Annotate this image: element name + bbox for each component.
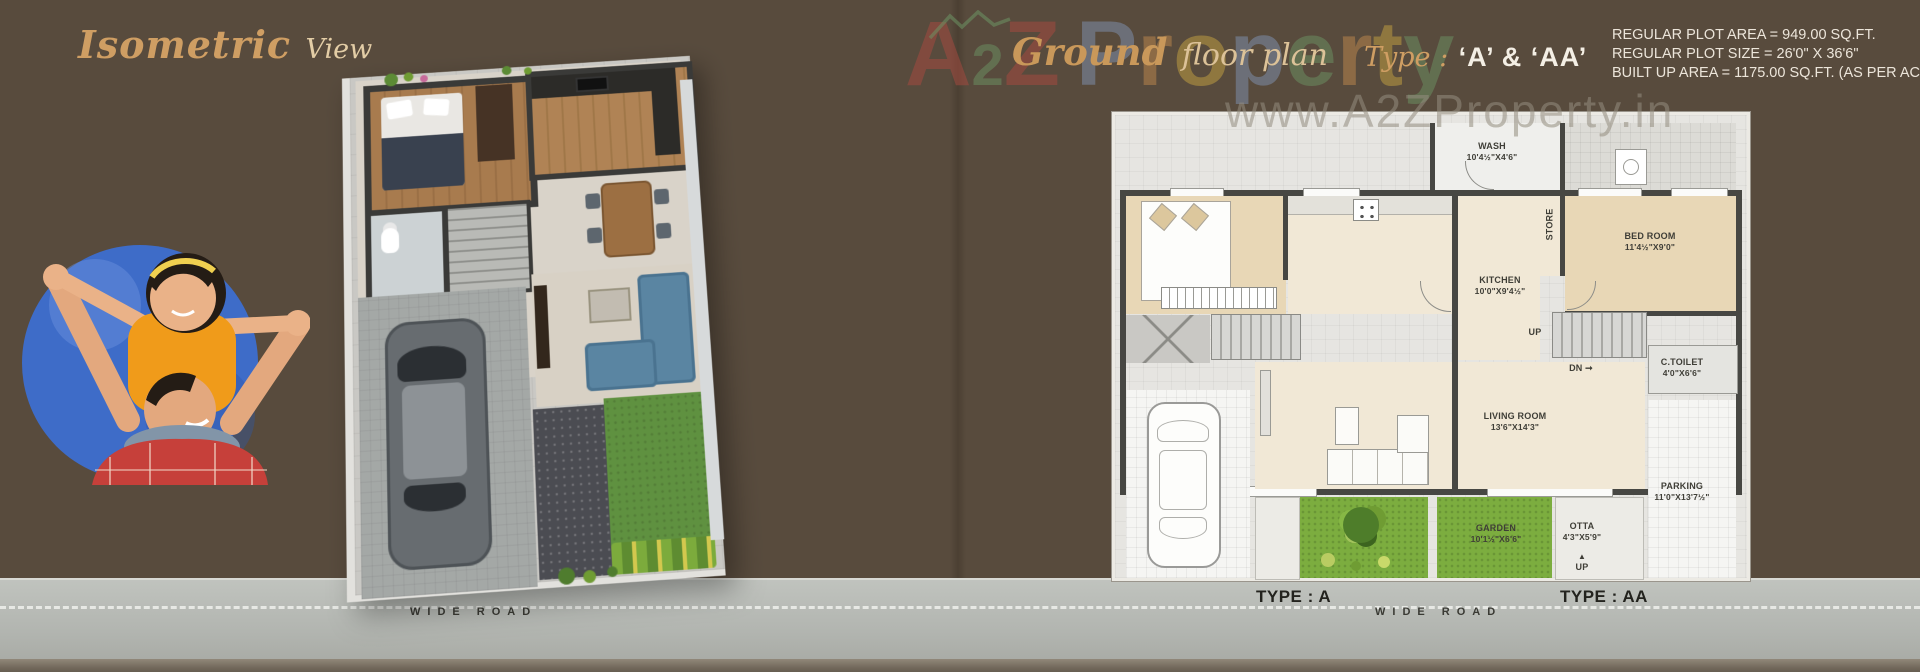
ctoilet-label: C.TOILET4'0"X6'6" <box>1661 357 1703 379</box>
stove-icon <box>575 76 608 93</box>
living-label: LIVING ROOM13'6"X14'3" <box>1484 411 1547 433</box>
toilet-icon <box>381 228 399 254</box>
mountain-icon <box>928 10 1012 40</box>
spec-plot-area: REGULAR PLOT AREA = 949.00 SQ.FT. <box>1612 26 1920 45</box>
tv-2d <box>1260 370 1271 436</box>
front-walk <box>533 405 613 581</box>
wardrobe-3d <box>475 84 515 162</box>
floor-plan-title: floor plan <box>1182 38 1328 73</box>
family-photo <box>0 185 310 485</box>
road-strip: WIDE ROAD WIDE ROAD TYPE : A TYPE : AA <box>0 578 1920 672</box>
brochure-spread: A2ZProperty www.A2ZProperty.in Isometric… <box>0 0 1920 672</box>
ground-floor-plan: WASH10'4½"X4'6" BED ROOM11'4½"X9'0" STOR… <box>1115 115 1747 578</box>
stairs-dn-label: DN ➞ <box>1569 363 1593 374</box>
ground-title: Ground <box>1012 30 1167 74</box>
kitchen-label: KITCHEN10'0"X9'4½" <box>1475 275 1526 297</box>
stove-2d-icon <box>1353 199 1379 221</box>
stairs-up-label: UP <box>1529 327 1542 338</box>
bedroom-label: BED ROOM11'4½"X9'0" <box>1624 231 1675 253</box>
table-2d <box>1335 407 1359 445</box>
lawn <box>604 391 716 549</box>
typeAA-stairs <box>1552 312 1647 358</box>
type-label: Type : <box>1364 42 1448 73</box>
dining-chair <box>654 189 670 205</box>
bed-pillow <box>423 98 449 115</box>
otta-label: OTTA4'3"X5'9" <box>1563 521 1601 543</box>
isometric-view-title: Isometric View <box>78 22 372 67</box>
bottom-texture-strip <box>0 659 1920 672</box>
wash-label: WASH10'4½"X4'6" <box>1467 141 1518 163</box>
isometric-title-main: Isometric <box>78 22 291 67</box>
tree-icon <box>1343 507 1379 543</box>
isometric-title-sub: View <box>306 34 373 65</box>
bush-icon <box>1321 553 1335 567</box>
up-arrow-icon: ▲ <box>1576 551 1589 562</box>
garden-label: GARDEN10'1½"X6'6" <box>1471 523 1522 545</box>
type-line: Type : ‘A’ & ‘AA’ <box>1364 42 1587 73</box>
store-label: STORE <box>1545 209 1556 241</box>
stairs-3d <box>444 200 534 298</box>
dn-arrow-icon: ➞ <box>1582 363 1592 373</box>
ground-floor-plan-title: Ground floor plan <box>1012 30 1328 74</box>
wide-road-label-left: WIDE ROAD <box>400 606 547 618</box>
sofa-l <box>585 339 658 392</box>
typeA-otta <box>1255 497 1300 580</box>
type-aa-label: TYPE : AA <box>1560 587 1648 607</box>
dining-table <box>602 182 653 256</box>
typeA-stairs <box>1211 314 1301 360</box>
sofa-2d-chaise <box>1397 415 1429 453</box>
dining-chair <box>587 227 603 243</box>
type-a-label: TYPE : A <box>1256 587 1331 607</box>
wardrobe-2d <box>1161 287 1277 309</box>
store-dark-2d <box>1126 315 1210 363</box>
car-2d-roof <box>1159 450 1207 510</box>
washing-machine-drum <box>1623 159 1639 175</box>
watermark-url: www.A2ZProperty.in <box>1225 84 1674 138</box>
isometric-render <box>296 52 730 608</box>
car-2d-windshield <box>1157 420 1209 442</box>
right-outer-wall <box>1736 190 1742 495</box>
dining-chair <box>656 223 672 239</box>
wide-road-label-right: WIDE ROAD <box>1365 606 1512 618</box>
dining-chair <box>585 193 601 209</box>
type-value: ‘A’ & ‘AA’ <box>1459 42 1588 72</box>
coffee-table <box>588 287 632 323</box>
sofa-2d <box>1327 449 1429 485</box>
parking-label: PARKING11'0"X13'7½" <box>1654 481 1709 503</box>
plot-specs: REGULAR PLOT AREA = 949.00 SQ.FT. REGULA… <box>1612 26 1920 83</box>
spec-built-up-area: BUILT UP AREA = 1175.00 SQ.FT. (AS PER A… <box>1612 64 1920 83</box>
spec-plot-size: REGULAR PLOT SIZE = 26'0" X 36'6" <box>1612 45 1920 64</box>
otta-up-label: ▲ UP <box>1576 551 1589 573</box>
car-2d-rear <box>1159 517 1207 539</box>
car-roof <box>402 382 468 480</box>
bed-blanket <box>382 133 465 191</box>
